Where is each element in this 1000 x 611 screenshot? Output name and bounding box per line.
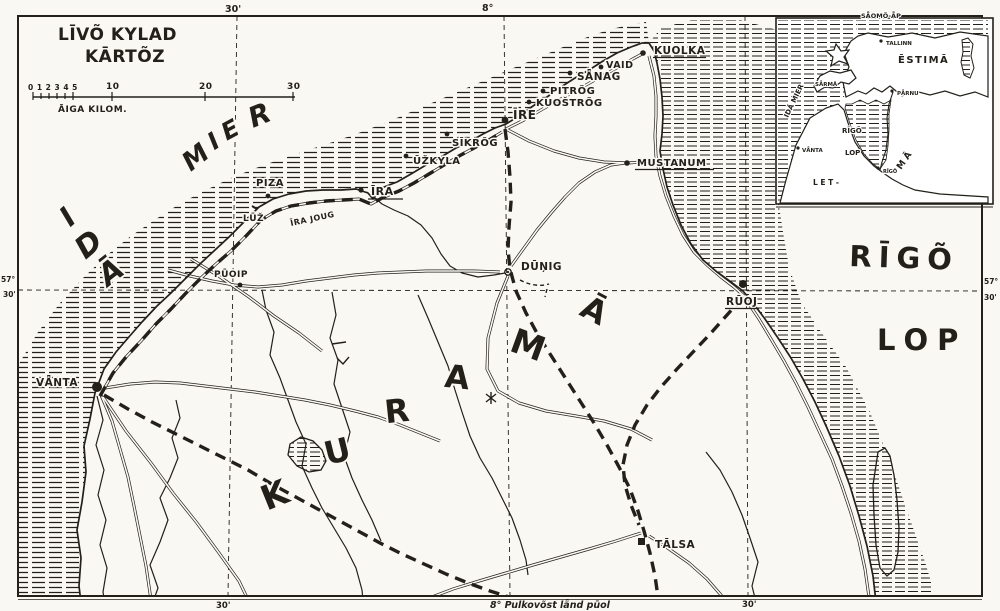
marker-ira <box>358 187 363 192</box>
map-title-line1: LĪVÕ KYLAD <box>58 22 177 45</box>
inset-label-parnu: PǞRNU <box>897 89 919 97</box>
kurama-letter-a: A <box>443 357 472 397</box>
marker-kuostrog <box>527 100 532 105</box>
marker-pitrog <box>541 89 546 94</box>
label-sanag: SǞNAG <box>577 69 621 83</box>
label-dunig: DŪŅIG <box>521 260 562 273</box>
scale-label-10: 10 <box>106 82 120 92</box>
label-talsa: TĀLSA <box>655 538 696 551</box>
label-sikrog: SĪKRÕG <box>452 136 498 149</box>
label-ire: ĪRE <box>513 108 536 122</box>
inset-marker-riga <box>876 166 879 169</box>
label-vaid: VAID <box>606 60 633 71</box>
label-luz: LŪŽ <box>243 212 264 224</box>
coord-bottom-30-left: 30' <box>216 601 230 611</box>
label-puoip: PŪOIP <box>214 269 248 280</box>
label-kuostrog: KUOŠTRÕG <box>536 96 603 109</box>
label-pitrog: PITRÕG <box>550 84 595 97</box>
inset-marker-tallinn <box>879 39 882 42</box>
scale-label-20: 20 <box>199 82 213 92</box>
coord-right-57: 57° <box>984 277 998 286</box>
coord-left-30: 30' <box>3 290 16 299</box>
label-mustanum: MUSTANUM <box>637 158 707 169</box>
inset-label-rigo-gulf: RĪGÕ <box>842 126 862 135</box>
marker-sanag <box>568 71 573 76</box>
marker-uzkyla <box>404 154 409 159</box>
marker-ruoj <box>739 280 747 288</box>
marker-mustanum <box>624 160 630 166</box>
marker-piza <box>266 194 271 199</box>
scale-label-30: 30 <box>287 82 301 92</box>
sea-name-lop: LOP <box>877 323 967 357</box>
bottom-meridian-note: 8° Pulkovõst lǟnd pūol <box>490 600 611 611</box>
coord-right-30: 30' <box>984 293 997 302</box>
map-drawing: M I E R I D Ā K U R A M Ā RĪGÕ LOP PIZA … <box>0 0 1000 611</box>
coord-top-30: 30' <box>225 4 241 15</box>
livonian-villages-map: M I E R I D Ā K U R A M Ā RĪGÕ LOP PIZA … <box>0 0 1000 611</box>
kurama-letter-r: R <box>383 391 411 431</box>
inset-label-saomo: SǞOMÕ-ǞP <box>861 10 901 20</box>
label-uzkyla: ŪŽKYLA <box>413 154 460 167</box>
marker-kuolka <box>640 50 646 56</box>
label-kuolka: KUOLKA <box>654 45 706 57</box>
marker-talsa <box>638 538 645 545</box>
coord-left-57: 57° <box>1 275 15 284</box>
marker-puoip <box>238 283 243 288</box>
marker-ire <box>502 117 509 124</box>
inset-marker-vanta <box>796 146 799 149</box>
coord-top-8: 8° <box>482 3 493 14</box>
inset-label-tallinn: TALLINN <box>886 41 912 47</box>
inset-label-riga-city: RĪGÕ <box>883 168 897 175</box>
label-piza: PIZA <box>256 178 284 189</box>
sea-name-rigo: RĪGÕ <box>849 239 960 277</box>
inset-label-letma-left: L E T - <box>813 178 839 187</box>
inset-label-estima: ĒSTIMĀ <box>898 53 949 66</box>
map-title-line2: KĀRTÕZ <box>85 44 165 67</box>
scale-unit-label: ĀIGA KILOM. <box>58 104 127 115</box>
inset-marker-parnu <box>890 89 893 92</box>
label-vanta: VǞNTA <box>36 375 78 389</box>
scale-minor-labels: 0 1 2 3 4 5 <box>28 83 78 92</box>
marker-sikrog <box>445 132 450 137</box>
label-ruoj: RŪOJ <box>726 295 757 308</box>
inset-map: SǞOMÕ-ǞP TALLINN ĒSTIMĀ PǞRNU SǞRMĀ RĪGÕ… <box>776 10 993 207</box>
coord-bottom-30-right: 30' <box>742 600 756 610</box>
marker-vanta <box>92 382 102 392</box>
inset-label-vanta: VǞNTA <box>802 146 823 154</box>
label-ira: ĪRA <box>371 185 394 198</box>
inset-label-lop-gulf: LOP <box>845 149 860 157</box>
inset-label-sarma: SǞRMĀ <box>815 80 838 88</box>
marker-vaid <box>599 65 604 70</box>
